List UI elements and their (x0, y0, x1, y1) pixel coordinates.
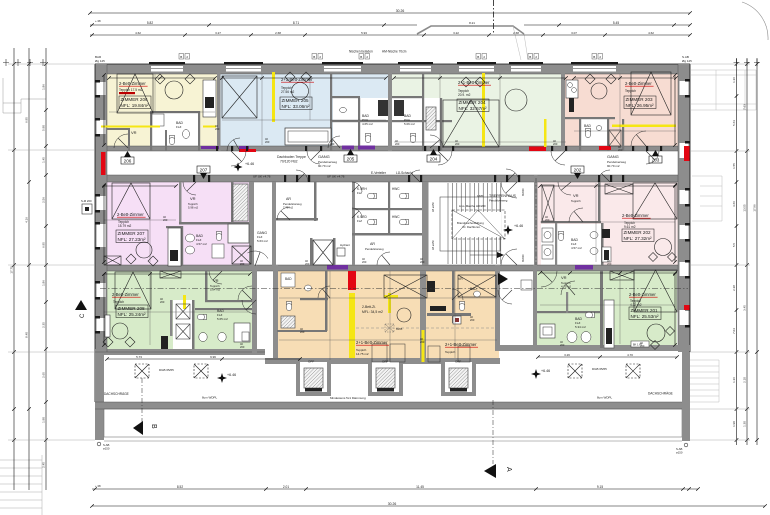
svg-text:1.90: 1.90 (42, 417, 46, 423)
svg-text:2.01: 2.01 (283, 485, 289, 489)
svg-text:2+1-Bett-Zimmer: 2+1-Bett-Zimmer (458, 80, 490, 85)
svg-text:E-Verteiler: E-Verteiler (371, 171, 387, 175)
svg-text:2.65: 2.65 (42, 372, 46, 378)
svg-text:Øg 125: Øg 125 (95, 59, 105, 63)
svg-text:2.10: 2.10 (743, 377, 747, 383)
svg-text:FLZ: FLZ (357, 219, 362, 223)
svg-text:HWC: HWC (392, 187, 400, 191)
svg-text:5.45: 5.45 (613, 21, 619, 25)
svg-text:OPF: OPF (382, 360, 388, 364)
svg-text:90/200: 90/200 (522, 254, 525, 262)
svg-text:200: 200 (470, 318, 475, 322)
svg-text:Hydrant: Hydrant (340, 243, 350, 247)
svg-text:NFL: 26.95m²: NFL: 26.95m² (626, 103, 655, 108)
svg-text:200: 200 (330, 142, 335, 146)
svg-text:4.65 m2: 4.65 m2 (362, 122, 373, 126)
svg-text:200: 200 (455, 142, 460, 146)
svg-text:1.86: 1.86 (42, 280, 46, 286)
svg-text:2.35: 2.35 (42, 322, 46, 328)
svg-text:3.07: 3.07 (571, 31, 577, 35)
svg-text:207: 207 (200, 167, 208, 172)
svg-text:3.26: 3.26 (564, 353, 570, 357)
svg-text:5.93: 5.93 (361, 31, 367, 35)
svg-text:2.45: 2.45 (42, 462, 46, 468)
svg-text:2-Bett-Zimmer: 2-Bett-Zimmer (119, 81, 146, 86)
svg-text:AB ø150: AB ø150 (432, 240, 435, 250)
svg-text:VR: VR (573, 193, 579, 198)
svg-text:5.84 m2: 5.84 m2 (210, 288, 221, 292)
svg-text:17.96: 17.96 (753, 204, 757, 212)
svg-text:BAD: BAD (285, 277, 292, 281)
svg-text:ZIMMER 201: ZIMMER 201 (631, 308, 659, 313)
svg-text:Teppich: Teppich (445, 350, 456, 354)
svg-text:LÜ-Schacht: LÜ-Schacht (396, 171, 413, 175)
svg-text:2-Bett-Zimmer: 2-Bett-Zimmer (625, 81, 652, 86)
svg-text:5.98 m2: 5.98 m2 (188, 206, 199, 210)
svg-text:ZIMMER 208: ZIMMER 208 (118, 306, 146, 311)
svg-text:5.73: 5.73 (136, 355, 142, 359)
svg-text:5.63 m2: 5.63 m2 (257, 239, 268, 243)
svg-text:Pendelstorweg: Pendelstorweg (365, 247, 384, 251)
svg-text:S-M 200: S-M 200 (81, 199, 92, 203)
svg-text:11.45: 11.45 (416, 485, 424, 489)
svg-text:5.63: 5.63 (732, 120, 736, 126)
svg-text:VR: VR (131, 130, 137, 135)
svg-text:BAD: BAD (470, 287, 477, 291)
svg-text:30.26: 30.26 (396, 9, 405, 13)
svg-text:20.9. m2: 20.9. m2 (458, 93, 471, 97)
svg-text:15.79 m2: 15.79 m2 (118, 224, 132, 228)
svg-text:9.96: 9.96 (210, 355, 216, 359)
svg-text:4.16: 4.16 (25, 217, 29, 223)
svg-text:5.65 m2: 5.65 m2 (217, 317, 228, 321)
svg-text:202: 202 (574, 167, 582, 172)
svg-text:ZIMMER 207: ZIMMER 207 (118, 231, 146, 236)
svg-text:90/200: 90/200 (522, 188, 525, 196)
svg-text:ZIMMER 205: ZIMMER 205 (282, 98, 310, 103)
svg-text:B: B (593, 55, 595, 59)
svg-text:200: 200 (265, 140, 270, 144)
svg-text:8.21: 8.21 (469, 21, 475, 25)
svg-text:4.57 m2: 4.57 m2 (196, 242, 207, 246)
svg-text:5.82: 5.82 (147, 21, 153, 25)
svg-text:AR: AR (286, 197, 291, 201)
svg-text:TREPPENHAUS: TREPPENHAUS (489, 194, 517, 198)
svg-text:NFL: 27.23m²: NFL: 27.23m² (118, 237, 147, 242)
svg-text:UF UK +4.76: UF UK +4.76 (253, 175, 271, 179)
svg-text:Pendelverweg: Pendelverweg (489, 199, 508, 203)
svg-text:8.40: 8.40 (25, 332, 29, 338)
svg-text:27.56 m2: 27.56 m2 (281, 90, 295, 94)
svg-text:3.66: 3.66 (732, 201, 736, 207)
svg-text:B: B (313, 55, 315, 59)
svg-text:4.70: 4.70 (627, 353, 633, 357)
svg-text:3.22: 3.22 (453, 31, 459, 35)
svg-text:2-Bett-Zimmer: 2-Bett-Zimmer (629, 292, 656, 297)
svg-text:VR: VR (561, 275, 567, 280)
svg-text:Mindestens 5x1 Dämmung: Mindestens 5x1 Dämmung (330, 396, 366, 400)
svg-text:3.27: 3.27 (215, 31, 221, 35)
svg-text:200: 200 (420, 260, 425, 264)
svg-text:5.06 m2: 5.06 m2 (404, 122, 415, 126)
svg-text:NFL: 33.06m²: NFL: 33.06m² (282, 104, 311, 109)
svg-text:2.38: 2.38 (732, 285, 736, 291)
svg-text:4.62: 4.62 (648, 31, 654, 35)
svg-text:+.38: +.38 (95, 19, 101, 23)
svg-text:Lino. Marche HO/200: Lino. Marche HO/200 (459, 204, 486, 208)
svg-text:6.95: 6.95 (42, 242, 46, 248)
svg-text:2+1-Bett-Zimmer: 2+1-Bett-Zimmer (356, 340, 388, 345)
svg-text:GANG: GANG (607, 154, 619, 159)
svg-text:B: B (529, 55, 531, 59)
svg-text:UF UK +4.76: UF UK +4.76 (327, 175, 345, 179)
svg-text:Øg 125: Øg 125 (682, 59, 692, 63)
svg-text:DACHSCHRÄGE: DACHSCHRÄGE (648, 392, 673, 396)
svg-text:206: 206 (124, 158, 132, 163)
svg-text:70/120 FB2: 70/120 FB2 (280, 160, 298, 164)
svg-text:205: 205 (347, 156, 355, 161)
svg-text:200: 200 (163, 218, 168, 222)
svg-text:5.34 m2: 5.34 m2 (575, 325, 586, 329)
svg-text:NFL: 25.24m²: NFL: 25.24m² (118, 312, 147, 317)
svg-text:+6.46: +6.46 (541, 369, 550, 373)
svg-text:VR: VR (190, 196, 196, 201)
svg-text:5.5: 5.5 (732, 243, 736, 247)
svg-text:+.38: +.38 (95, 484, 101, 488)
svg-text:AB ø150: AB ø150 (432, 202, 435, 212)
svg-text:HWC: HWC (392, 215, 400, 219)
svg-text:C: C (80, 313, 86, 318)
svg-text:1.30: 1.30 (743, 421, 747, 427)
svg-text:30.26: 30.26 (388, 502, 397, 506)
svg-text:13.55: 13.55 (743, 204, 747, 212)
svg-text:FLZ: FLZ (176, 125, 182, 129)
svg-text:VR: VR (458, 277, 463, 281)
svg-text:AR: AR (370, 242, 375, 246)
svg-text:9.15: 9.15 (597, 485, 603, 489)
svg-text:OPF: OPF (455, 360, 461, 364)
svg-text:200: 200 (395, 142, 400, 146)
svg-text:DGB 65/65: DGB 65/65 (159, 368, 174, 372)
svg-text:+6.46: +6.46 (227, 373, 236, 377)
svg-text:200: 200 (160, 300, 165, 304)
svg-text:8.52: 8.52 (177, 485, 183, 489)
svg-text:200: 200 (545, 218, 550, 222)
svg-text:ZIMMER 204: ZIMMER 204 (459, 100, 487, 105)
svg-text:2.68: 2.68 (513, 31, 519, 35)
svg-text:4.57 m2: 4.57 m2 (571, 246, 582, 250)
svg-text:NFL: 25.53m²: NFL: 25.53m² (631, 314, 660, 319)
svg-text:7.79 m2: 7.79 m2 (283, 206, 294, 210)
svg-text:B: B (180, 55, 182, 59)
svg-text:Teppich: Teppich (571, 199, 581, 203)
svg-text:VR: VR (213, 278, 219, 283)
svg-text:1.36: 1.36 (732, 77, 736, 83)
svg-text:1.90: 1.90 (732, 421, 736, 427)
svg-text:7.63: 7.63 (743, 104, 747, 110)
svg-text:MFL: 34,5 m2: MFL: 34,5 m2 (362, 310, 383, 314)
svg-text:200: 200 (362, 260, 367, 264)
svg-text:i.D. Dachfenst.: i.D. Dachfenst. (462, 225, 481, 229)
svg-text:65/65: 65/65 (396, 328, 403, 331)
svg-text:200: 200 (420, 340, 425, 344)
svg-text:200: 200 (215, 127, 220, 131)
svg-text:1.55: 1.55 (732, 163, 736, 169)
svg-text:Teppich: Teppich (625, 89, 636, 93)
svg-text:200: 200 (240, 262, 245, 266)
svg-text:GANG: GANG (318, 154, 330, 159)
svg-text:8cm WDPL: 8cm WDPL (597, 396, 613, 400)
svg-text:200: 200 (305, 262, 310, 266)
svg-text:FLZ: FLZ (357, 191, 362, 195)
svg-text:B: B (150, 424, 157, 429)
svg-text:2.68: 2.68 (275, 31, 281, 35)
svg-text:+6.46: +6.46 (514, 224, 523, 228)
svg-text:ZIMMER 206: ZIMMER 206 (121, 97, 149, 102)
svg-text:200: 200 (607, 262, 612, 266)
svg-text:+6.46: +6.46 (245, 162, 254, 166)
svg-text:5.90: 5.90 (42, 125, 46, 131)
svg-text:204: 204 (430, 156, 438, 161)
svg-text:B: B (477, 55, 479, 59)
svg-text:200: 200 (618, 148, 623, 152)
svg-text:ZIMMER 203: ZIMMER 203 (626, 97, 654, 102)
svg-text:90.79 m2: 90.79 m2 (607, 164, 620, 168)
svg-text:6.95: 6.95 (25, 117, 29, 123)
svg-text:1.45: 1.45 (42, 157, 46, 163)
svg-text:9.61 m2: 9.61 m2 (624, 225, 636, 229)
svg-text:1.86: 1.86 (42, 84, 46, 90)
svg-text:ø150: ø150 (676, 451, 683, 455)
svg-text:7.04: 7.04 (732, 328, 736, 334)
svg-text:Nischen beladen: Nischen beladen (349, 50, 373, 54)
svg-text:90.79 m2: 90.79 m2 (318, 164, 331, 168)
svg-text:ZIMMER 202: ZIMMER 202 (624, 230, 652, 235)
svg-text:1689: 1689 (477, 194, 484, 198)
svg-text:Teppich: Teppich (113, 300, 124, 304)
svg-text:DACHSCHRÄGE: DACHSCHRÄGE (104, 392, 129, 396)
svg-text:8.71: 8.71 (293, 21, 299, 25)
svg-text:2-Bett-Zimmer: 2-Bett-Zimmer (117, 212, 144, 217)
svg-text:NFL: 27.32m²: NFL: 27.32m² (624, 236, 653, 241)
svg-text:200: 200 (240, 345, 245, 349)
svg-text:2-Bett-Zi.: 2-Bett-Zi. (362, 305, 376, 309)
svg-text:200: 200 (640, 344, 645, 348)
svg-text:OPF: OPF (308, 360, 314, 364)
svg-text:NFL: 19.84m²: NFL: 19.84m² (121, 103, 150, 108)
svg-text:2-Bett-Zimmer: 2-Bett-Zimmer (112, 292, 139, 297)
svg-text:ø150: ø150 (103, 447, 110, 451)
svg-text:NFL: 32.57m²: NFL: 32.57m² (459, 106, 488, 111)
svg-text:17.70: 17.70 (10, 266, 14, 274)
svg-text:200: 200 (300, 330, 305, 334)
svg-text:1.36: 1.36 (732, 377, 736, 383)
svg-text:Dachboden Treppe: Dachboden Treppe (277, 155, 306, 159)
svg-text:8cm WDPL: 8cm WDPL (202, 396, 218, 400)
svg-text:Teppich 17.5 m2: Teppich 17.5 m2 (119, 88, 143, 92)
svg-text:200: 200 (560, 343, 565, 347)
svg-text:4.70 m2: 4.70 m2 (561, 285, 572, 289)
svg-text:DGB 65/65: DGB 65/65 (592, 367, 607, 371)
svg-text:B: B (360, 55, 362, 59)
svg-text:2.56: 2.56 (42, 197, 46, 203)
svg-text:200: 200 (553, 142, 558, 146)
svg-text:BAD: BAD (584, 124, 592, 128)
svg-text:A: A (505, 467, 512, 472)
svg-text:14.75 m2: 14.75 m2 (356, 352, 369, 356)
svg-text:2+1-Bett-Zimmer: 2+1-Bett-Zimmer (445, 342, 477, 347)
svg-text:3.45: 3.45 (743, 305, 747, 311)
svg-text:4.62: 4.62 (135, 31, 141, 35)
svg-text:2-Bett-Zimmer: 2-Bett-Zimmer (622, 213, 649, 218)
svg-text:HM-Nische 70cm: HM-Nische 70cm (382, 50, 407, 54)
